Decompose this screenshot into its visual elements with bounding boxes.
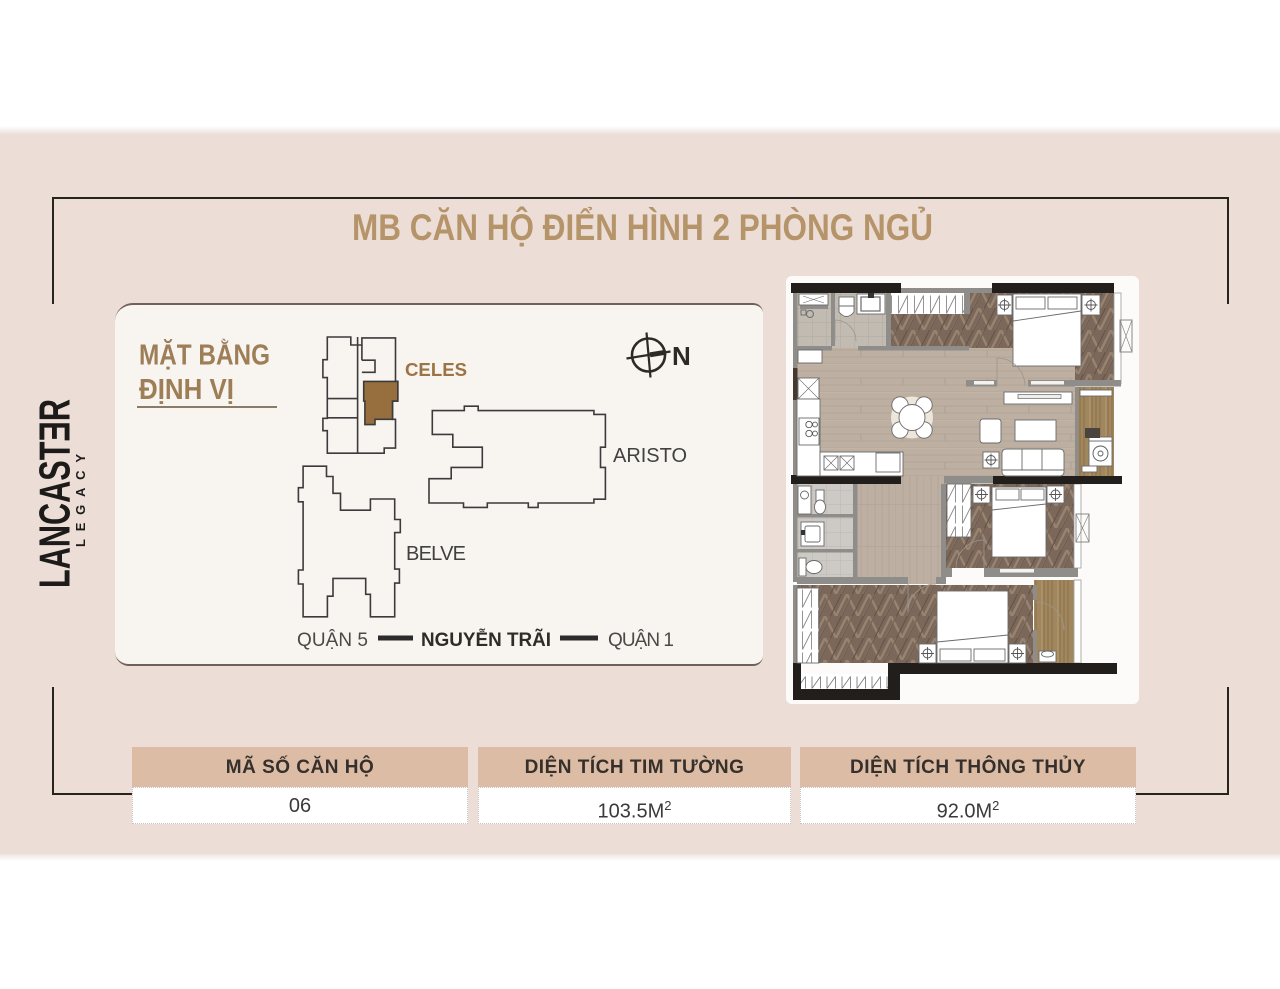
svg-text:ARISTO: ARISTO <box>613 445 687 467</box>
svg-text:QUẬN 5: QUẬN 5 <box>297 629 368 651</box>
svg-text:QUẬN 1: QUẬN 1 <box>608 629 674 651</box>
svg-text:CELES: CELES <box>405 360 467 380</box>
svg-text:MẶT BẰNG: MẶT BẰNG <box>139 338 270 372</box>
svg-text:MB CĂN HỘ ĐIỂN HÌNH 2 PHÒNG NG: MB CĂN HỘ ĐIỂN HÌNH 2 PHÒNG NGỦ <box>352 206 933 248</box>
svg-text:ĐỊNH VỊ: ĐỊNH VỊ <box>139 374 234 406</box>
svg-text:N: N <box>672 341 691 371</box>
svg-text:LEGACY: LEGACY <box>73 446 88 547</box>
svg-text:NGUYỄN TRÃI: NGUYỄN TRÃI <box>421 629 551 651</box>
svg-text:BELVE: BELVE <box>406 543 466 565</box>
